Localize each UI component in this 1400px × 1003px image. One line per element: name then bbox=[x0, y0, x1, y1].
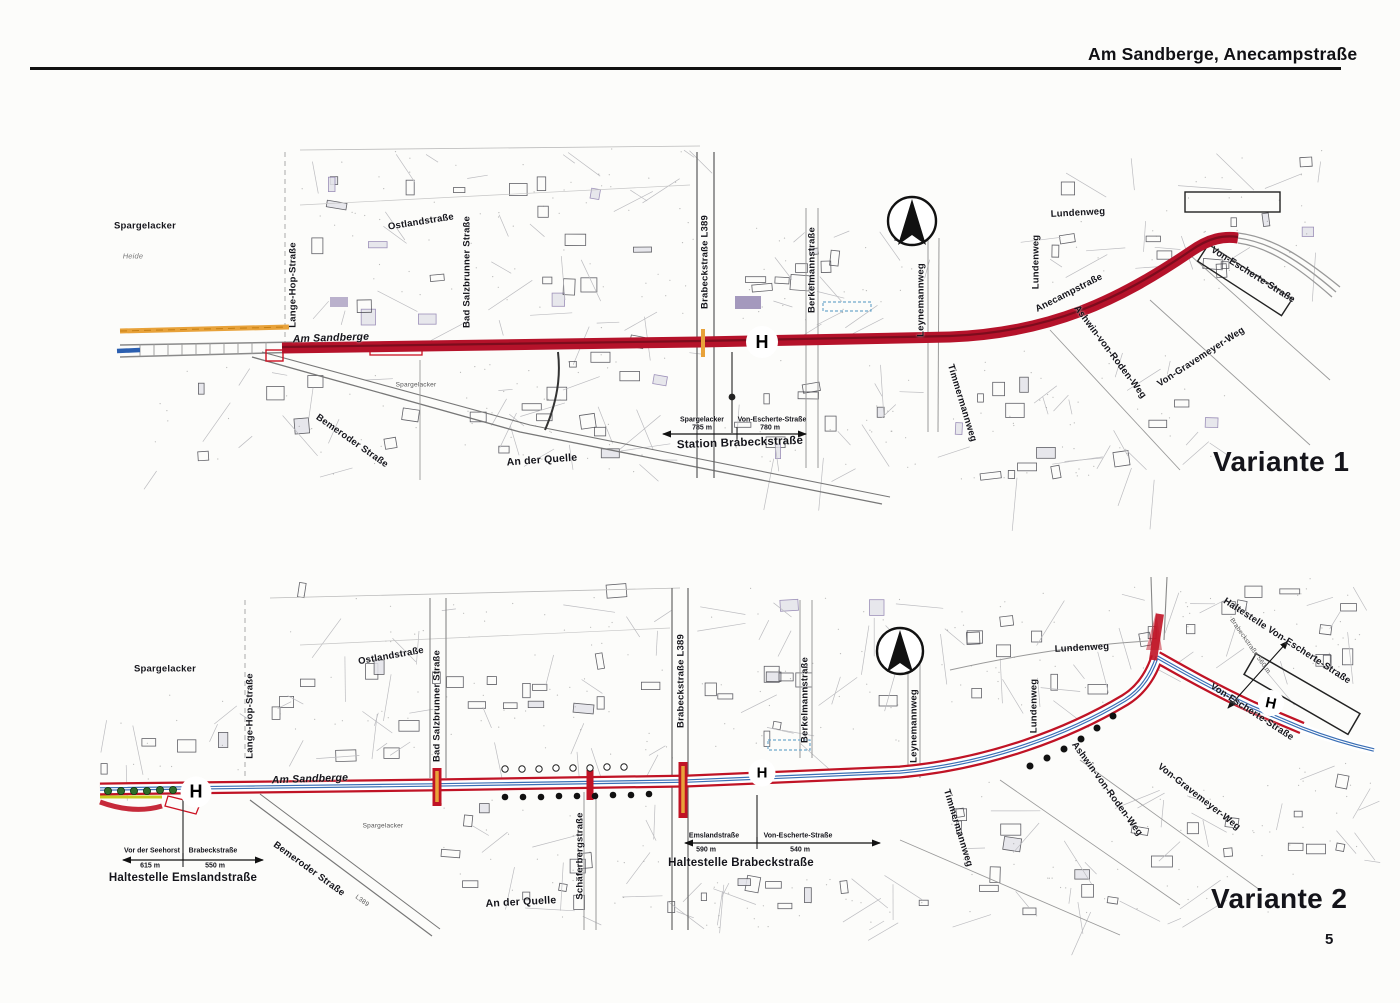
map2-roads bbox=[100, 577, 1374, 936]
distance-label-value: 780 m bbox=[760, 425, 780, 432]
map1-roads bbox=[117, 146, 1340, 504]
north-arrow-icon bbox=[877, 628, 923, 674]
street-label-berkelmannstrasse: Berkelmannstraße bbox=[807, 227, 818, 313]
street-label-leynemannweg: Leynemannweg bbox=[909, 689, 920, 763]
street-label-lange-hop-strasse: Lange-Hop-Straße bbox=[245, 673, 256, 759]
street-label-lundenweg-vertical: Lundenweg bbox=[1029, 679, 1040, 734]
street-label-spargelacker-small: Spargelacker bbox=[363, 823, 404, 830]
map-annotation-heide: Heide bbox=[123, 252, 144, 261]
map2-scan-texture bbox=[101, 578, 1380, 955]
distance-label-name: Brabeckstraße bbox=[189, 848, 238, 855]
street-label-schaeferbergstrasse: Schäferbergstraße bbox=[575, 812, 586, 899]
street-label-spargelacker: Spargelacker bbox=[134, 664, 196, 675]
distance-label-value: 785 m bbox=[692, 425, 712, 432]
tram-stop-symbol: H bbox=[750, 761, 775, 786]
street-label-lundenweg-vertical: Lundenweg bbox=[1031, 235, 1042, 290]
street-label-lange-hop-strasse: Lange-Hop-Straße bbox=[288, 242, 299, 328]
document-page: Am Sandberge, Anecampstraße bbox=[0, 0, 1400, 1003]
distance-label-name: Vor der Seehorst bbox=[124, 848, 180, 855]
distance-label-value: 550 m bbox=[205, 863, 225, 870]
variant-1-title: Variante 1 bbox=[1213, 446, 1349, 478]
variant-2-title: Variante 2 bbox=[1211, 883, 1347, 915]
distance-label-name: Emslandstraße bbox=[689, 833, 739, 840]
distance-label-value: 540 m bbox=[790, 847, 810, 854]
stop-label-emslandstrasse: Haltestelle Emslandstraße bbox=[109, 872, 257, 884]
street-label-brabeckstrasse: Brabeckstraße L389 bbox=[676, 634, 687, 728]
distance-label-value: 590 m bbox=[696, 847, 716, 854]
page-number: 5 bbox=[1325, 931, 1334, 948]
tram-stop-symbol: H bbox=[747, 327, 777, 357]
north-arrow-icon bbox=[888, 197, 936, 245]
stop-label-brabeckstrasse: Haltestelle Brabeckstraße bbox=[668, 857, 814, 869]
distance-label-name: Von-Escherte-Straße bbox=[764, 833, 833, 840]
street-label-spargelacker: Spargelacker bbox=[114, 221, 176, 232]
street-label-bad-salzbrunner-strasse: Bad Salzbrunner Straße bbox=[462, 216, 473, 328]
distance-label-value: 615 m bbox=[140, 863, 160, 870]
distance-label-name: Spargelacker bbox=[680, 417, 724, 424]
street-label-leynemannweg: Leynemannweg bbox=[916, 263, 927, 337]
street-label-bad-salzbrunner-strasse: Bad Salzbrunner Straße bbox=[432, 650, 443, 762]
tram-stop-symbol: H bbox=[182, 778, 211, 807]
street-label-spargelacker-small: Spargelacker bbox=[396, 382, 437, 389]
distance-label-name: Von-Escherte-Straße bbox=[738, 417, 807, 424]
street-label-brabeckstrasse: Brabeckstraße L389 bbox=[700, 215, 711, 309]
street-label-berkelmannstrasse: Berkelmannstraße bbox=[800, 657, 811, 743]
